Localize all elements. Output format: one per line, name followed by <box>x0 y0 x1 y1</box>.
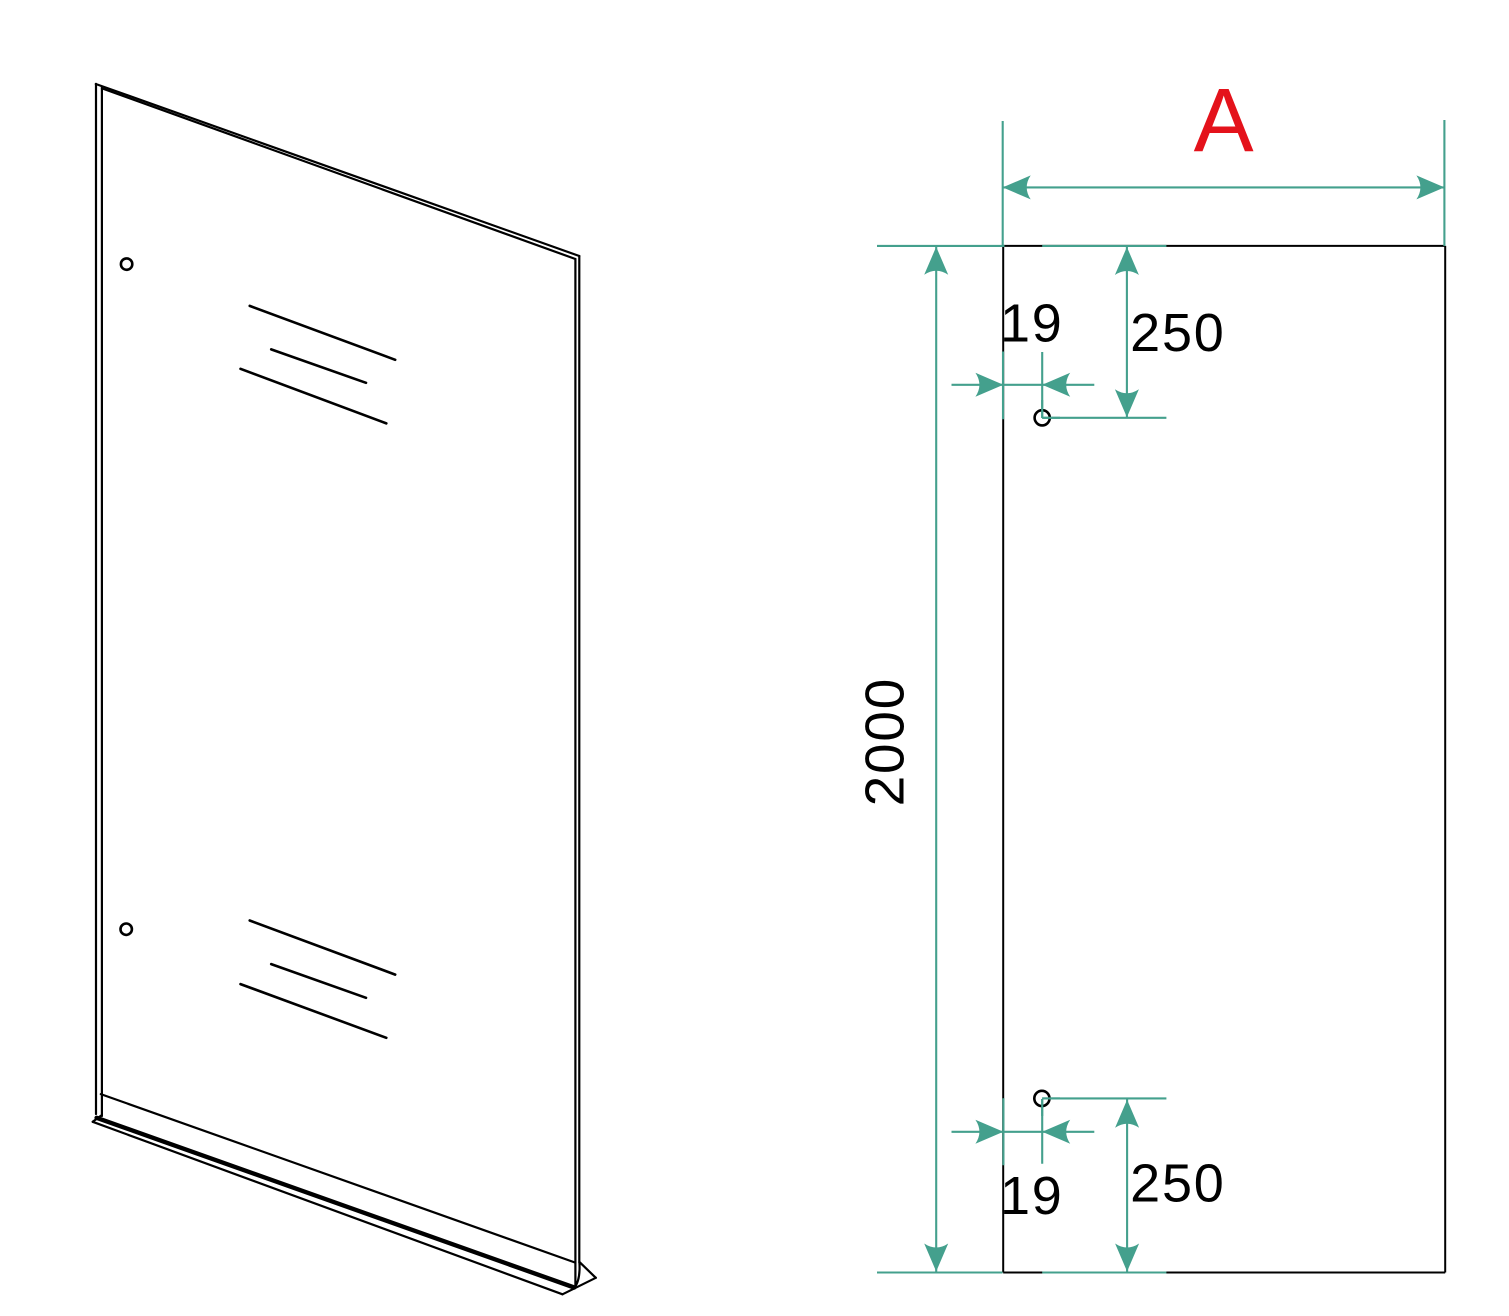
svg-text:19: 19 <box>1000 1166 1064 1226</box>
svg-text:19: 19 <box>1000 294 1064 354</box>
svg-text:250: 250 <box>1130 303 1226 363</box>
svg-text:2000: 2000 <box>854 677 916 807</box>
svg-text:A: A <box>1194 71 1254 171</box>
svg-text:250: 250 <box>1130 1154 1226 1214</box>
